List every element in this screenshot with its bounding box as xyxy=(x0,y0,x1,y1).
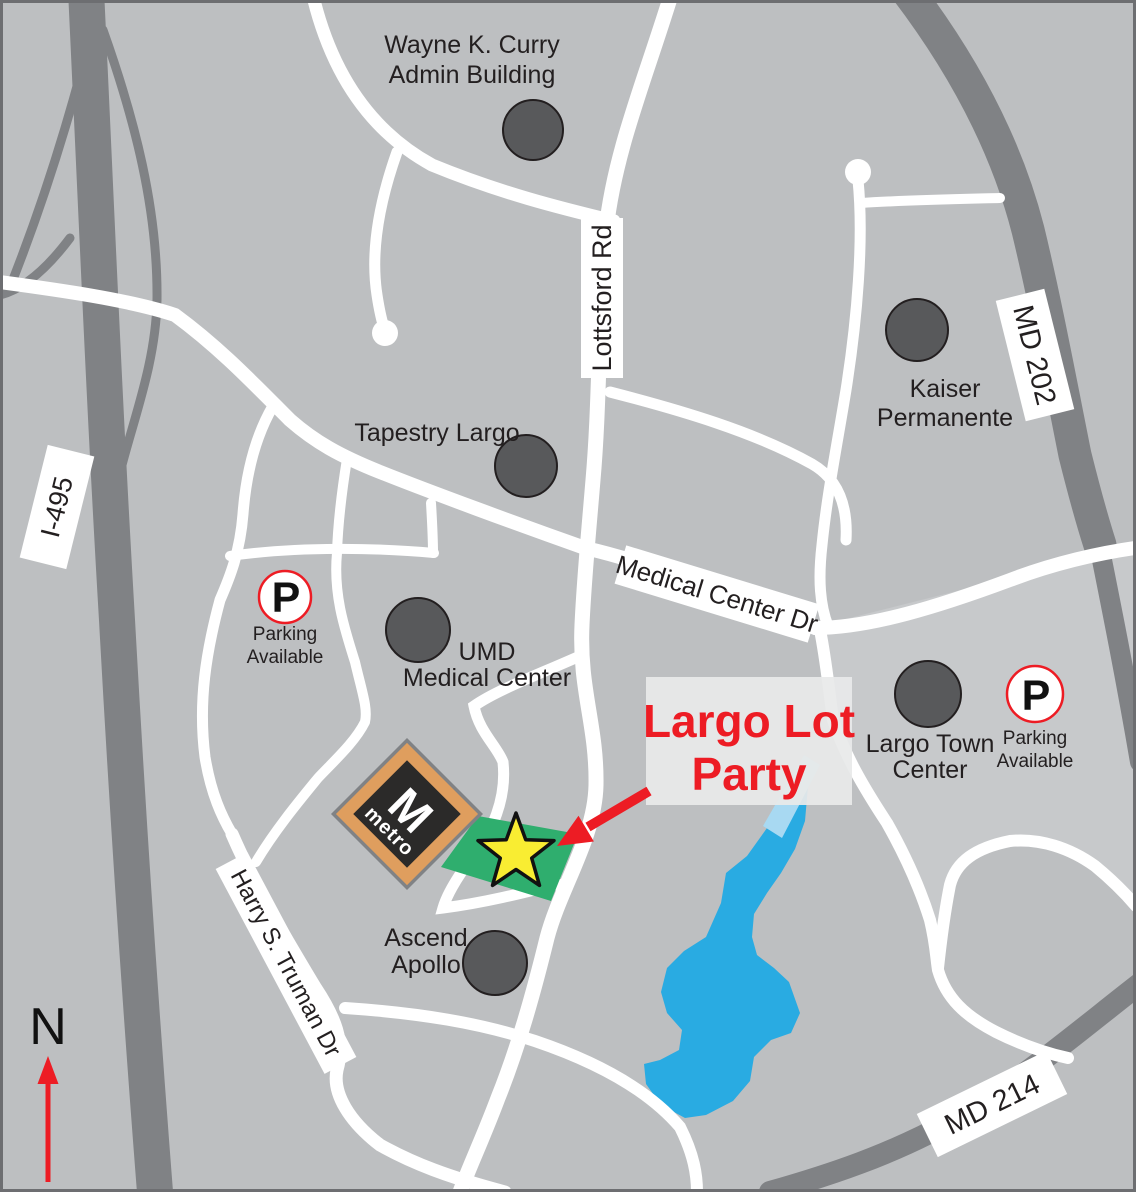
poi-dot-ascend-apollo xyxy=(463,931,527,995)
poi-label: UMD xyxy=(459,638,516,666)
poi-label: Largo Town xyxy=(866,730,995,758)
poi-label: Ascend xyxy=(384,924,467,952)
parking-label: Parking xyxy=(253,624,317,645)
road-block-vertical-east xyxy=(431,503,433,553)
poi-dot-wayne-curry xyxy=(503,100,563,160)
poi-label: Apollo xyxy=(391,951,461,979)
cul-de-sac-east xyxy=(845,159,871,185)
poi-label: Tapestry Largo xyxy=(354,419,519,447)
parking-p: P xyxy=(272,574,301,622)
poi-label: Center xyxy=(892,756,967,784)
poi-label: Kaiser xyxy=(910,375,981,403)
parking-label: Parking xyxy=(1003,728,1067,749)
road-kaiser-horizontal xyxy=(861,198,1000,203)
poi-label: Medical Center xyxy=(403,664,571,692)
poi-label: Admin Building xyxy=(389,61,556,89)
poi-dot-umd xyxy=(386,598,450,662)
cul-de-sac-west xyxy=(372,320,398,346)
north-label: N xyxy=(29,998,67,1056)
poi-label: Permanente xyxy=(877,404,1013,432)
poi-dot-kaiser xyxy=(886,299,948,361)
poi-label: Wayne K. Curry xyxy=(384,31,560,59)
callout-title: Largo Lot xyxy=(643,695,855,747)
poi-dot-largo-town-center xyxy=(895,661,961,727)
callout-title: Party xyxy=(691,748,806,800)
parking-label: Available xyxy=(247,647,324,668)
parking-label: Available xyxy=(997,751,1074,772)
label-text: Lottsford Rd xyxy=(587,224,617,371)
map-canvas: M metro I-495 Lottsford Rd MD 202 Medica… xyxy=(0,0,1136,1192)
largo-lot-party-map: M metro I-495 Lottsford Rd MD 202 Medica… xyxy=(0,0,1136,1192)
label-lottsford-rd: Lottsford Rd xyxy=(581,218,623,378)
parking-p: P xyxy=(1022,672,1051,720)
